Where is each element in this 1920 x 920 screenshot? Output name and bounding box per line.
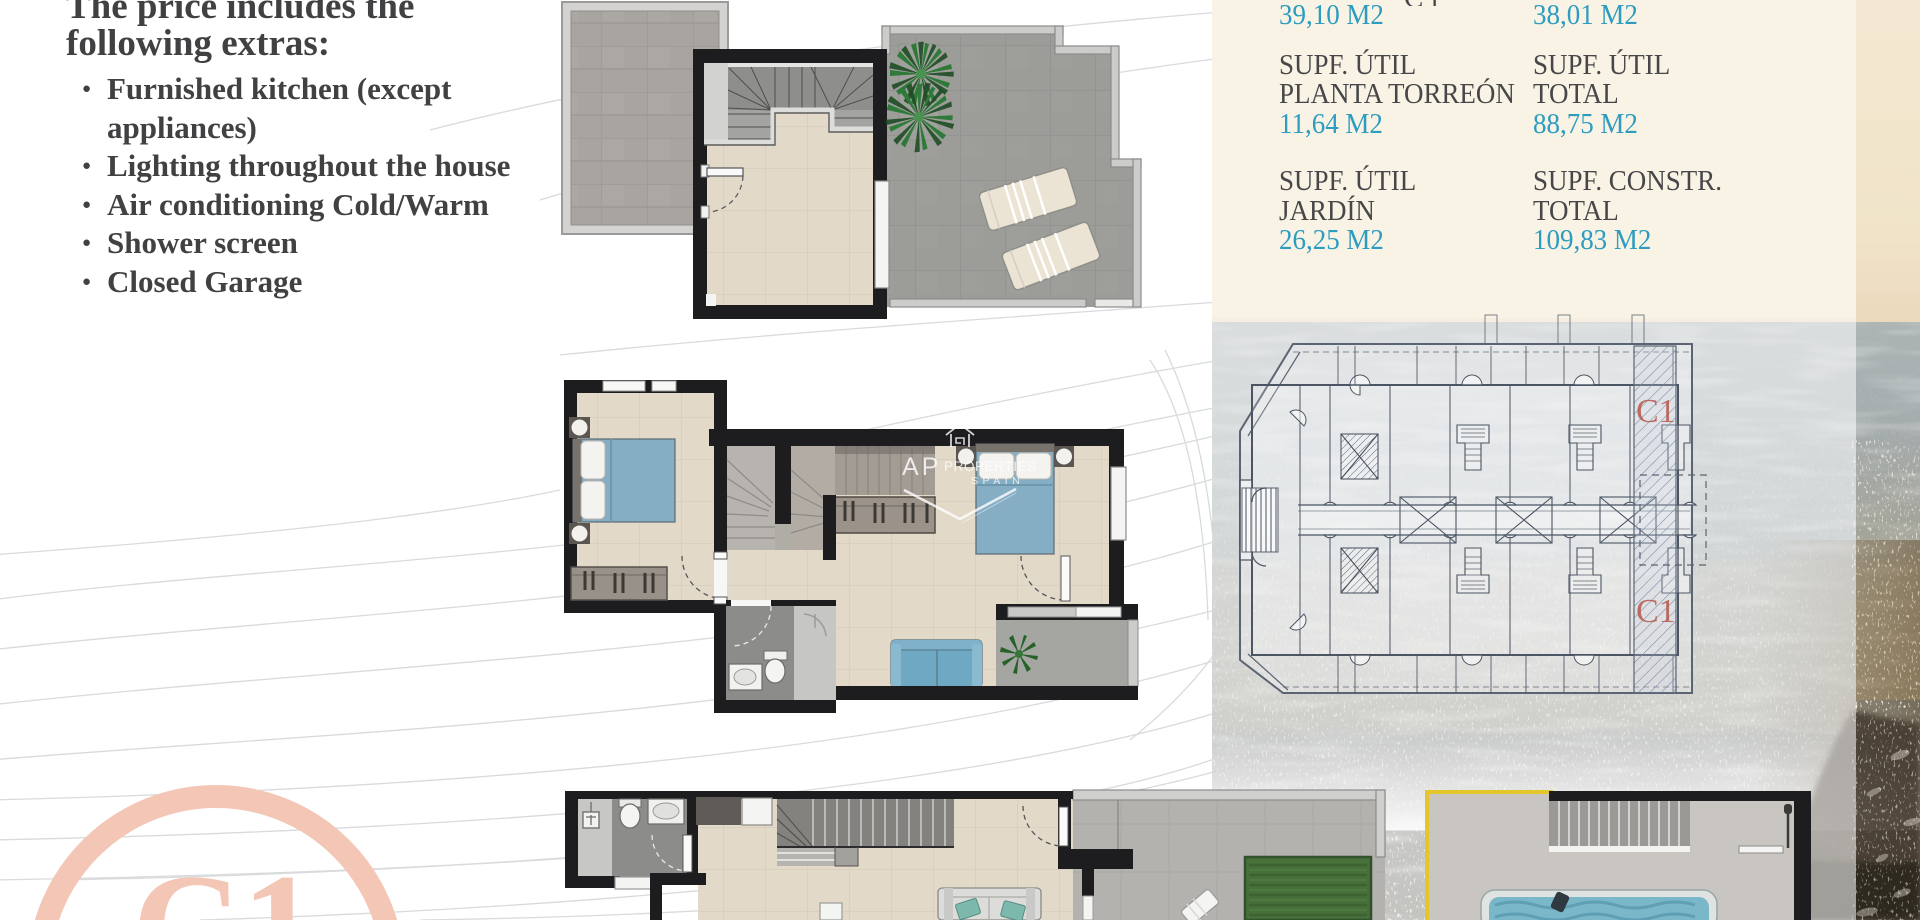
- svg-text:AP: AP: [902, 453, 941, 481]
- svg-text:C1: C1: [1636, 593, 1676, 630]
- svg-text:C1: C1: [132, 843, 318, 920]
- svg-text:PROPERTIES: PROPERTIES: [944, 459, 1037, 474]
- svg-text:SPAIN: SPAIN: [971, 475, 1024, 487]
- svg-text:C1: C1: [1636, 393, 1676, 430]
